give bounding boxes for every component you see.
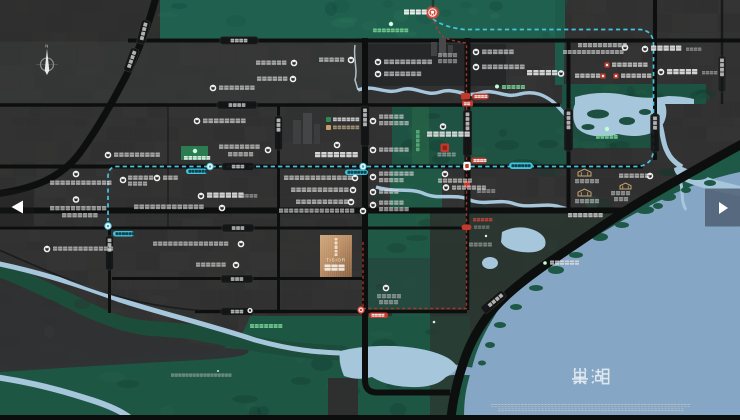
svg-text:TISIOR: TISIOR xyxy=(326,258,346,263)
svg-text:N: N xyxy=(45,44,48,49)
